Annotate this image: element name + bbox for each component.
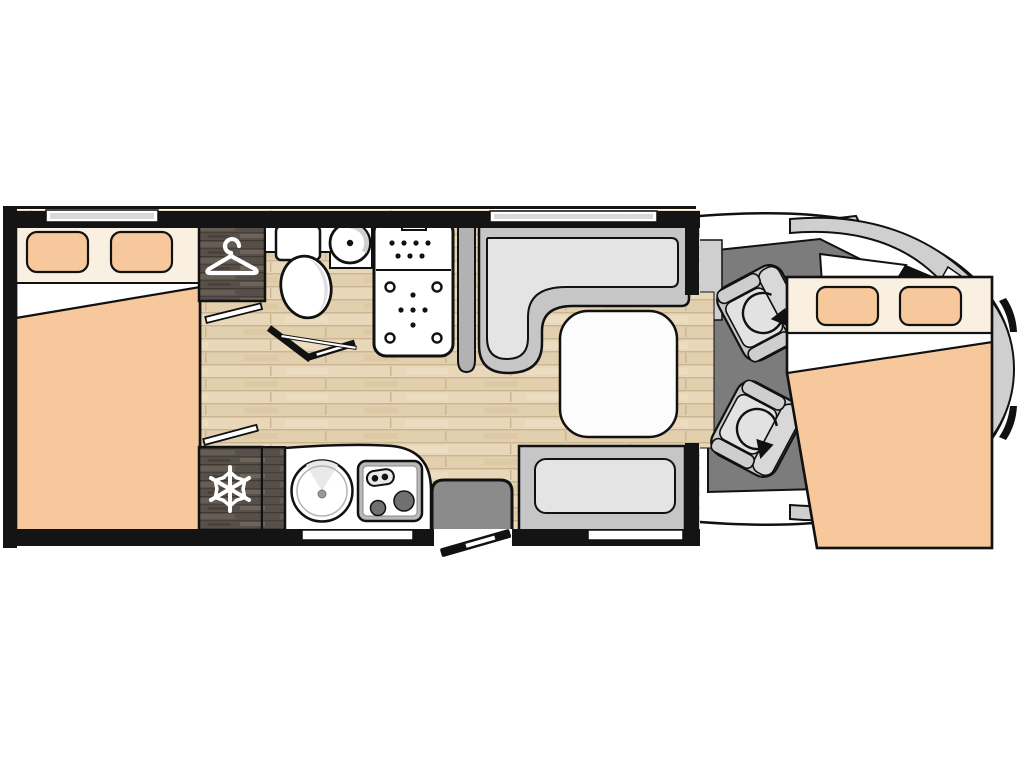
- burner-small: [371, 501, 386, 516]
- wall-left: [3, 206, 17, 548]
- window-bench-bottom: [588, 530, 683, 540]
- cab-walkway-floor: [698, 292, 714, 448]
- hob: [358, 461, 422, 521]
- entry-door: [434, 529, 512, 557]
- toilet-cistern: [276, 226, 320, 260]
- burner-large: [394, 491, 414, 511]
- shower-cubicle: [374, 214, 453, 356]
- side-bench-cushion: [535, 459, 675, 513]
- wall-stub-bottom-right: [685, 443, 699, 546]
- habitation-area: [3, 206, 700, 557]
- roof-edge-line: [8, 206, 696, 209]
- basin-drain: [347, 240, 353, 246]
- rear-bed-pillow-left: [27, 232, 88, 272]
- refrigerator: [199, 447, 262, 531]
- wall-stub-top-right: [685, 211, 699, 295]
- rear-bed-blanket: [16, 287, 200, 532]
- wardrobe: [199, 220, 265, 301]
- front-bed-pillow-left: [817, 287, 878, 325]
- kitchen-block: [262, 445, 431, 531]
- kitchen-cabinet: [262, 447, 285, 531]
- rear-double-bed: [16, 220, 200, 532]
- entry-step: [432, 480, 512, 531]
- front-drop-down-bed: [787, 277, 992, 548]
- floorplan-canvas: [0, 0, 1024, 768]
- front-bed-blanket: [787, 342, 992, 548]
- rear-bed-pillow-right: [111, 232, 172, 272]
- front-bed-pillow-right: [900, 287, 961, 325]
- dinette-table: [560, 311, 677, 437]
- kitchen-sink-drain: [318, 490, 326, 498]
- shower-side-panel: [458, 220, 475, 372]
- window-kitchen-bottom: [302, 530, 413, 540]
